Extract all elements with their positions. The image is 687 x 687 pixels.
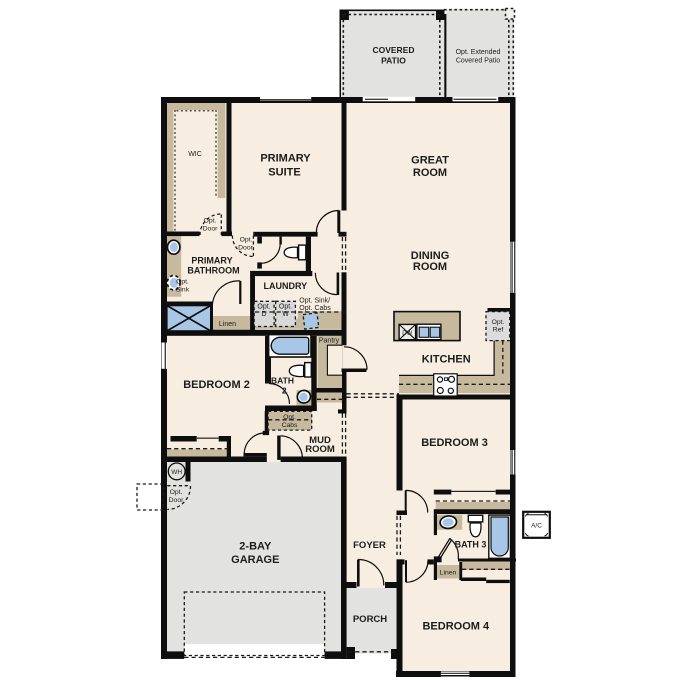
svg-text:GREAT: GREAT bbox=[411, 155, 449, 167]
svg-text:PRIMARY: PRIMARY bbox=[260, 153, 311, 165]
svg-text:PRIMARY: PRIMARY bbox=[191, 255, 232, 265]
svg-text:BEDROOM 3: BEDROOM 3 bbox=[421, 437, 488, 449]
svg-text:Linen: Linen bbox=[219, 321, 236, 328]
svg-text:Cabs: Cabs bbox=[282, 422, 298, 429]
svg-text:2: 2 bbox=[282, 386, 287, 396]
svg-text:Opt.: Opt. bbox=[492, 319, 505, 326]
svg-text:PATIO: PATIO bbox=[381, 56, 406, 66]
svg-text:Opt. Cabs: Opt. Cabs bbox=[299, 305, 331, 312]
svg-text:Opt. Sink/: Opt. Sink/ bbox=[299, 298, 330, 305]
svg-text:ROOM: ROOM bbox=[413, 261, 447, 273]
svg-text:WIC: WIC bbox=[188, 151, 202, 158]
svg-text:Opt.: Opt. bbox=[283, 414, 296, 421]
svg-text:Opt.: Opt. bbox=[279, 304, 292, 311]
svg-text:Door: Door bbox=[203, 226, 218, 233]
svg-text:W: W bbox=[282, 311, 289, 318]
svg-text:Opt.: Opt. bbox=[170, 489, 183, 496]
svg-text:2-BAY: 2-BAY bbox=[239, 541, 272, 553]
svg-text:BEDROOM 2: BEDROOM 2 bbox=[183, 379, 250, 391]
svg-text:PORCH: PORCH bbox=[353, 614, 387, 625]
svg-text:BATHROOM: BATHROOM bbox=[187, 265, 239, 275]
svg-text:BATH: BATH bbox=[271, 375, 294, 385]
svg-text:Opt.: Opt. bbox=[240, 237, 253, 244]
svg-text:Opt.: Opt. bbox=[257, 304, 270, 311]
svg-text:WH: WH bbox=[171, 469, 182, 476]
svg-text:A/C: A/C bbox=[531, 522, 542, 529]
svg-text:DW: DW bbox=[402, 331, 412, 337]
svg-text:GARAGE: GARAGE bbox=[231, 554, 279, 566]
svg-text:BEDROOM 4: BEDROOM 4 bbox=[422, 621, 490, 633]
svg-text:Door: Door bbox=[238, 245, 253, 252]
svg-text:Opt. Extended: Opt. Extended bbox=[456, 49, 501, 56]
svg-text:LAUNDRY: LAUNDRY bbox=[263, 281, 307, 291]
svg-text:FOYER: FOYER bbox=[353, 540, 386, 551]
svg-text:D: D bbox=[261, 311, 266, 318]
svg-text:KITCHEN: KITCHEN bbox=[422, 354, 471, 366]
svg-text:SUITE: SUITE bbox=[268, 167, 300, 179]
svg-text:ROOM: ROOM bbox=[305, 444, 335, 455]
svg-text:ROOM: ROOM bbox=[413, 167, 447, 179]
svg-text:Opt.: Opt. bbox=[204, 218, 217, 225]
svg-text:BATH 3: BATH 3 bbox=[455, 540, 487, 550]
svg-text:Pantry: Pantry bbox=[319, 337, 340, 344]
svg-text:Linen: Linen bbox=[440, 569, 457, 576]
svg-text:Door: Door bbox=[169, 497, 184, 504]
svg-text:Ref: Ref bbox=[493, 327, 504, 334]
svg-text:Sink: Sink bbox=[176, 286, 190, 293]
svg-text:Covered Patio: Covered Patio bbox=[456, 58, 500, 65]
svg-text:COVERED: COVERED bbox=[372, 45, 414, 55]
svg-text:Opt.: Opt. bbox=[176, 278, 189, 285]
